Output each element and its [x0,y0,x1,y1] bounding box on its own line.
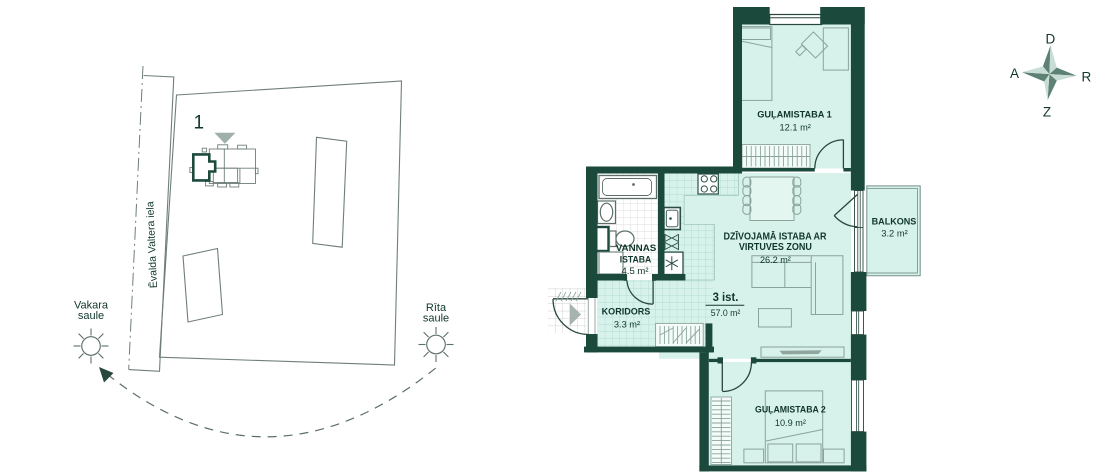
svg-text:Z: Z [1043,105,1051,120]
svg-text:57.0 m²: 57.0 m² [711,307,741,318]
svg-text:KORIDORS: KORIDORS [602,306,651,317]
svg-text:Ēvalda Valtera iela: Ēvalda Valtera iela [144,201,160,288]
svg-text:3.3 m²: 3.3 m² [614,320,640,330]
svg-text:3 ist.: 3 ist. [713,290,739,304]
svg-text:3.2 m²: 3.2 m² [881,229,908,239]
svg-text:saule: saule [423,313,449,325]
svg-text:10.9 m²: 10.9 m² [775,417,806,428]
svg-text:4.5 m²: 4.5 m² [622,266,649,276]
svg-text:GUĻAMISTABA 1: GUĻAMISTABA 1 [757,109,832,119]
svg-text:DZĪVOJAMĀ ISTABA AR: DZĪVOJAMĀ ISTABA AR [724,231,828,243]
svg-text:BALKONS: BALKONS [872,217,917,227]
svg-text:VANNAS: VANNAS [616,242,657,253]
svg-text:1: 1 [194,113,205,134]
svg-text:R: R [1082,70,1092,85]
svg-text:26.2 m²: 26.2 m² [760,254,791,265]
svg-text:A: A [1010,66,1019,81]
svg-text:saule: saule [78,310,104,322]
svg-text:ISTABA: ISTABA [620,254,652,265]
svg-text:VIRTUVES ZONU: VIRTUVES ZONU [739,242,812,253]
svg-text:12.1 m²: 12.1 m² [780,122,811,133]
svg-text:GUĻAMISTABA 2: GUĻAMISTABA 2 [755,404,826,414]
svg-text:D: D [1046,32,1056,47]
